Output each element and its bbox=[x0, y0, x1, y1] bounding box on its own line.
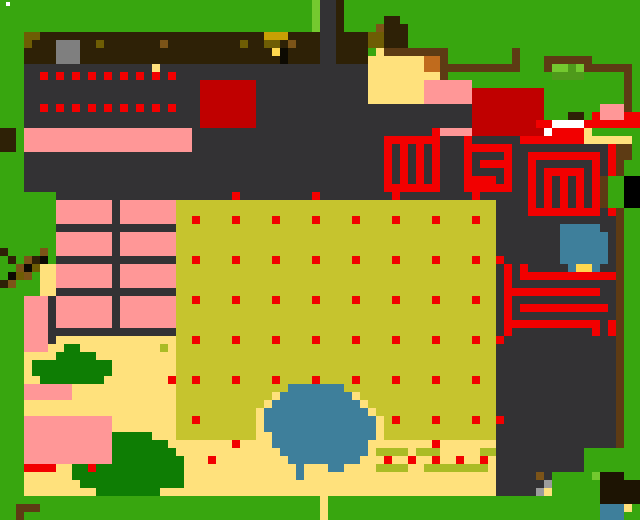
dark-tree-bottomright bbox=[600, 472, 640, 504]
red-maze-gate-mid[interactable] bbox=[464, 136, 520, 200]
pink-stall-topright[interactable] bbox=[600, 104, 624, 120]
pond[interactable] bbox=[264, 384, 376, 480]
blue-hut[interactable] bbox=[560, 224, 608, 272]
red-maze-spiral[interactable] bbox=[528, 152, 608, 216]
red-doormat[interactable] bbox=[24, 464, 56, 472]
sparkle-pixel bbox=[6, 2, 10, 6]
orange-crate[interactable] bbox=[424, 56, 440, 72]
character-sprite[interactable] bbox=[536, 472, 552, 496]
red-mat[interactable] bbox=[200, 80, 256, 128]
blue-dock[interactable] bbox=[600, 504, 624, 520]
sprout-row-dashes bbox=[376, 440, 488, 472]
seed-tray-grid[interactable] bbox=[32, 64, 184, 120]
courtyard-tan bbox=[368, 56, 432, 104]
pink-awning[interactable] bbox=[424, 80, 472, 104]
stone-block[interactable] bbox=[56, 40, 80, 64]
pink-counter[interactable] bbox=[24, 128, 192, 160]
fenced-hedge[interactable] bbox=[544, 56, 592, 80]
farmhouse-red[interactable] bbox=[472, 88, 544, 136]
log-bench[interactable] bbox=[16, 504, 40, 520]
bunk-tables-room[interactable] bbox=[56, 200, 176, 328]
red-maze-gate-left[interactable] bbox=[384, 136, 448, 200]
fence-right-strip bbox=[616, 144, 624, 448]
bush-large-bottom bbox=[72, 432, 184, 496]
pink-rug-small[interactable] bbox=[24, 384, 72, 400]
game-viewport bbox=[0, 0, 640, 520]
path-top[interactable] bbox=[320, 0, 336, 64]
bush-small-left bbox=[24, 344, 112, 384]
tree-canopy-left bbox=[0, 184, 56, 288]
path-bottom-gap[interactable] bbox=[320, 496, 328, 520]
